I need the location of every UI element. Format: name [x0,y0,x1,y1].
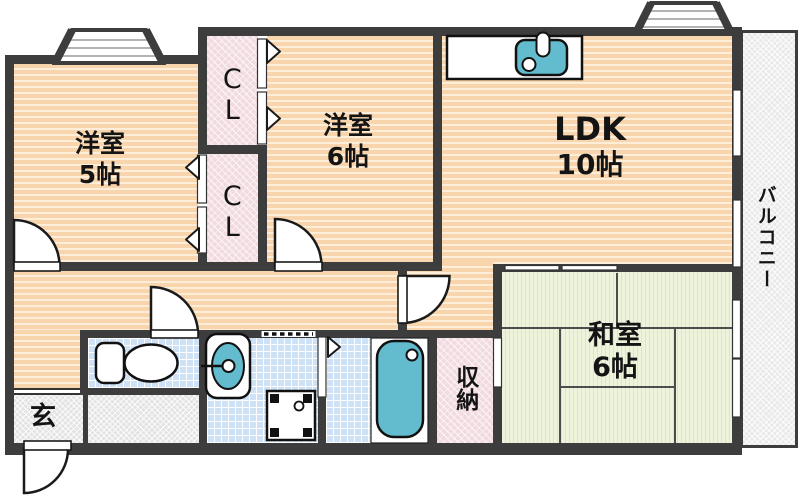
washitsu-sliding-door [505,266,559,271]
door-west5 [14,220,60,266]
room-size: 10帖 [528,148,652,182]
room-name: 洋室 [48,128,152,159]
closet-lower-door-arrow [186,228,199,251]
folding-door-washroom [261,331,316,338]
label-west5: 洋室 5帖 [48,128,152,191]
kitchen-counter [447,33,582,80]
door-leaf-west5 [14,262,60,271]
storage-opening [494,338,502,387]
washbasin-icon [201,334,250,398]
washitsu-balcony-window [733,300,741,358]
label-west6: 洋室 6帖 [300,110,396,173]
washitsu-sliding-door [562,266,617,271]
door-leaf-entrance [24,441,71,450]
bay-window-west [55,30,163,63]
washitsu-balcony-window [733,359,741,417]
label-balcony: バルコニー [753,162,777,312]
closet-upper-door-arrow [267,107,280,130]
label-storage: 収納 [450,352,479,424]
faucet-icon [537,33,550,57]
closet-upper-door-panel [258,39,267,88]
label-entrance: 玄 [26,401,60,434]
room-size: 6帖 [300,141,396,172]
label-washitsu: 和室 6帖 [562,320,668,385]
label-closet-lower: CL [215,165,249,259]
toilet-icon [96,343,178,383]
bath-door-arrow [328,337,340,357]
room-size: 5帖 [48,159,152,190]
door-toilet [151,287,198,334]
door-leaf-toilet [151,330,198,338]
room-name: 洋室 [300,110,396,141]
floorplan-canvas: 洋室 5帖 洋室 6帖 LDK 10帖 和室 6帖 CL CL 収納 玄 バルコ… [0,0,800,496]
room-name: LDK [528,110,652,148]
washing-machine-icon [267,391,315,440]
label-ldk: LDK 10帖 [528,110,652,182]
bath-door-opening [318,337,326,397]
label-closet-upper: CL [215,48,249,142]
door-west6 [275,219,322,266]
door-leaf-west6 [275,262,322,271]
bathtub-icon [371,338,428,443]
closet-upper-door-arrow [267,40,280,63]
closet-upper-door-panel [258,92,267,144]
room-size: 6帖 [562,352,668,384]
door-ldk [403,276,450,323]
floorplan-overlay [0,0,800,496]
ldk-balcony-window [733,200,741,267]
room-name: 和室 [562,320,668,352]
closet-lower-door-arrow [186,156,199,179]
bay-window-ldk [637,3,730,31]
ldk-balcony-window [733,90,741,156]
door-leaf-ldk [398,276,407,323]
door-entrance [24,449,68,493]
